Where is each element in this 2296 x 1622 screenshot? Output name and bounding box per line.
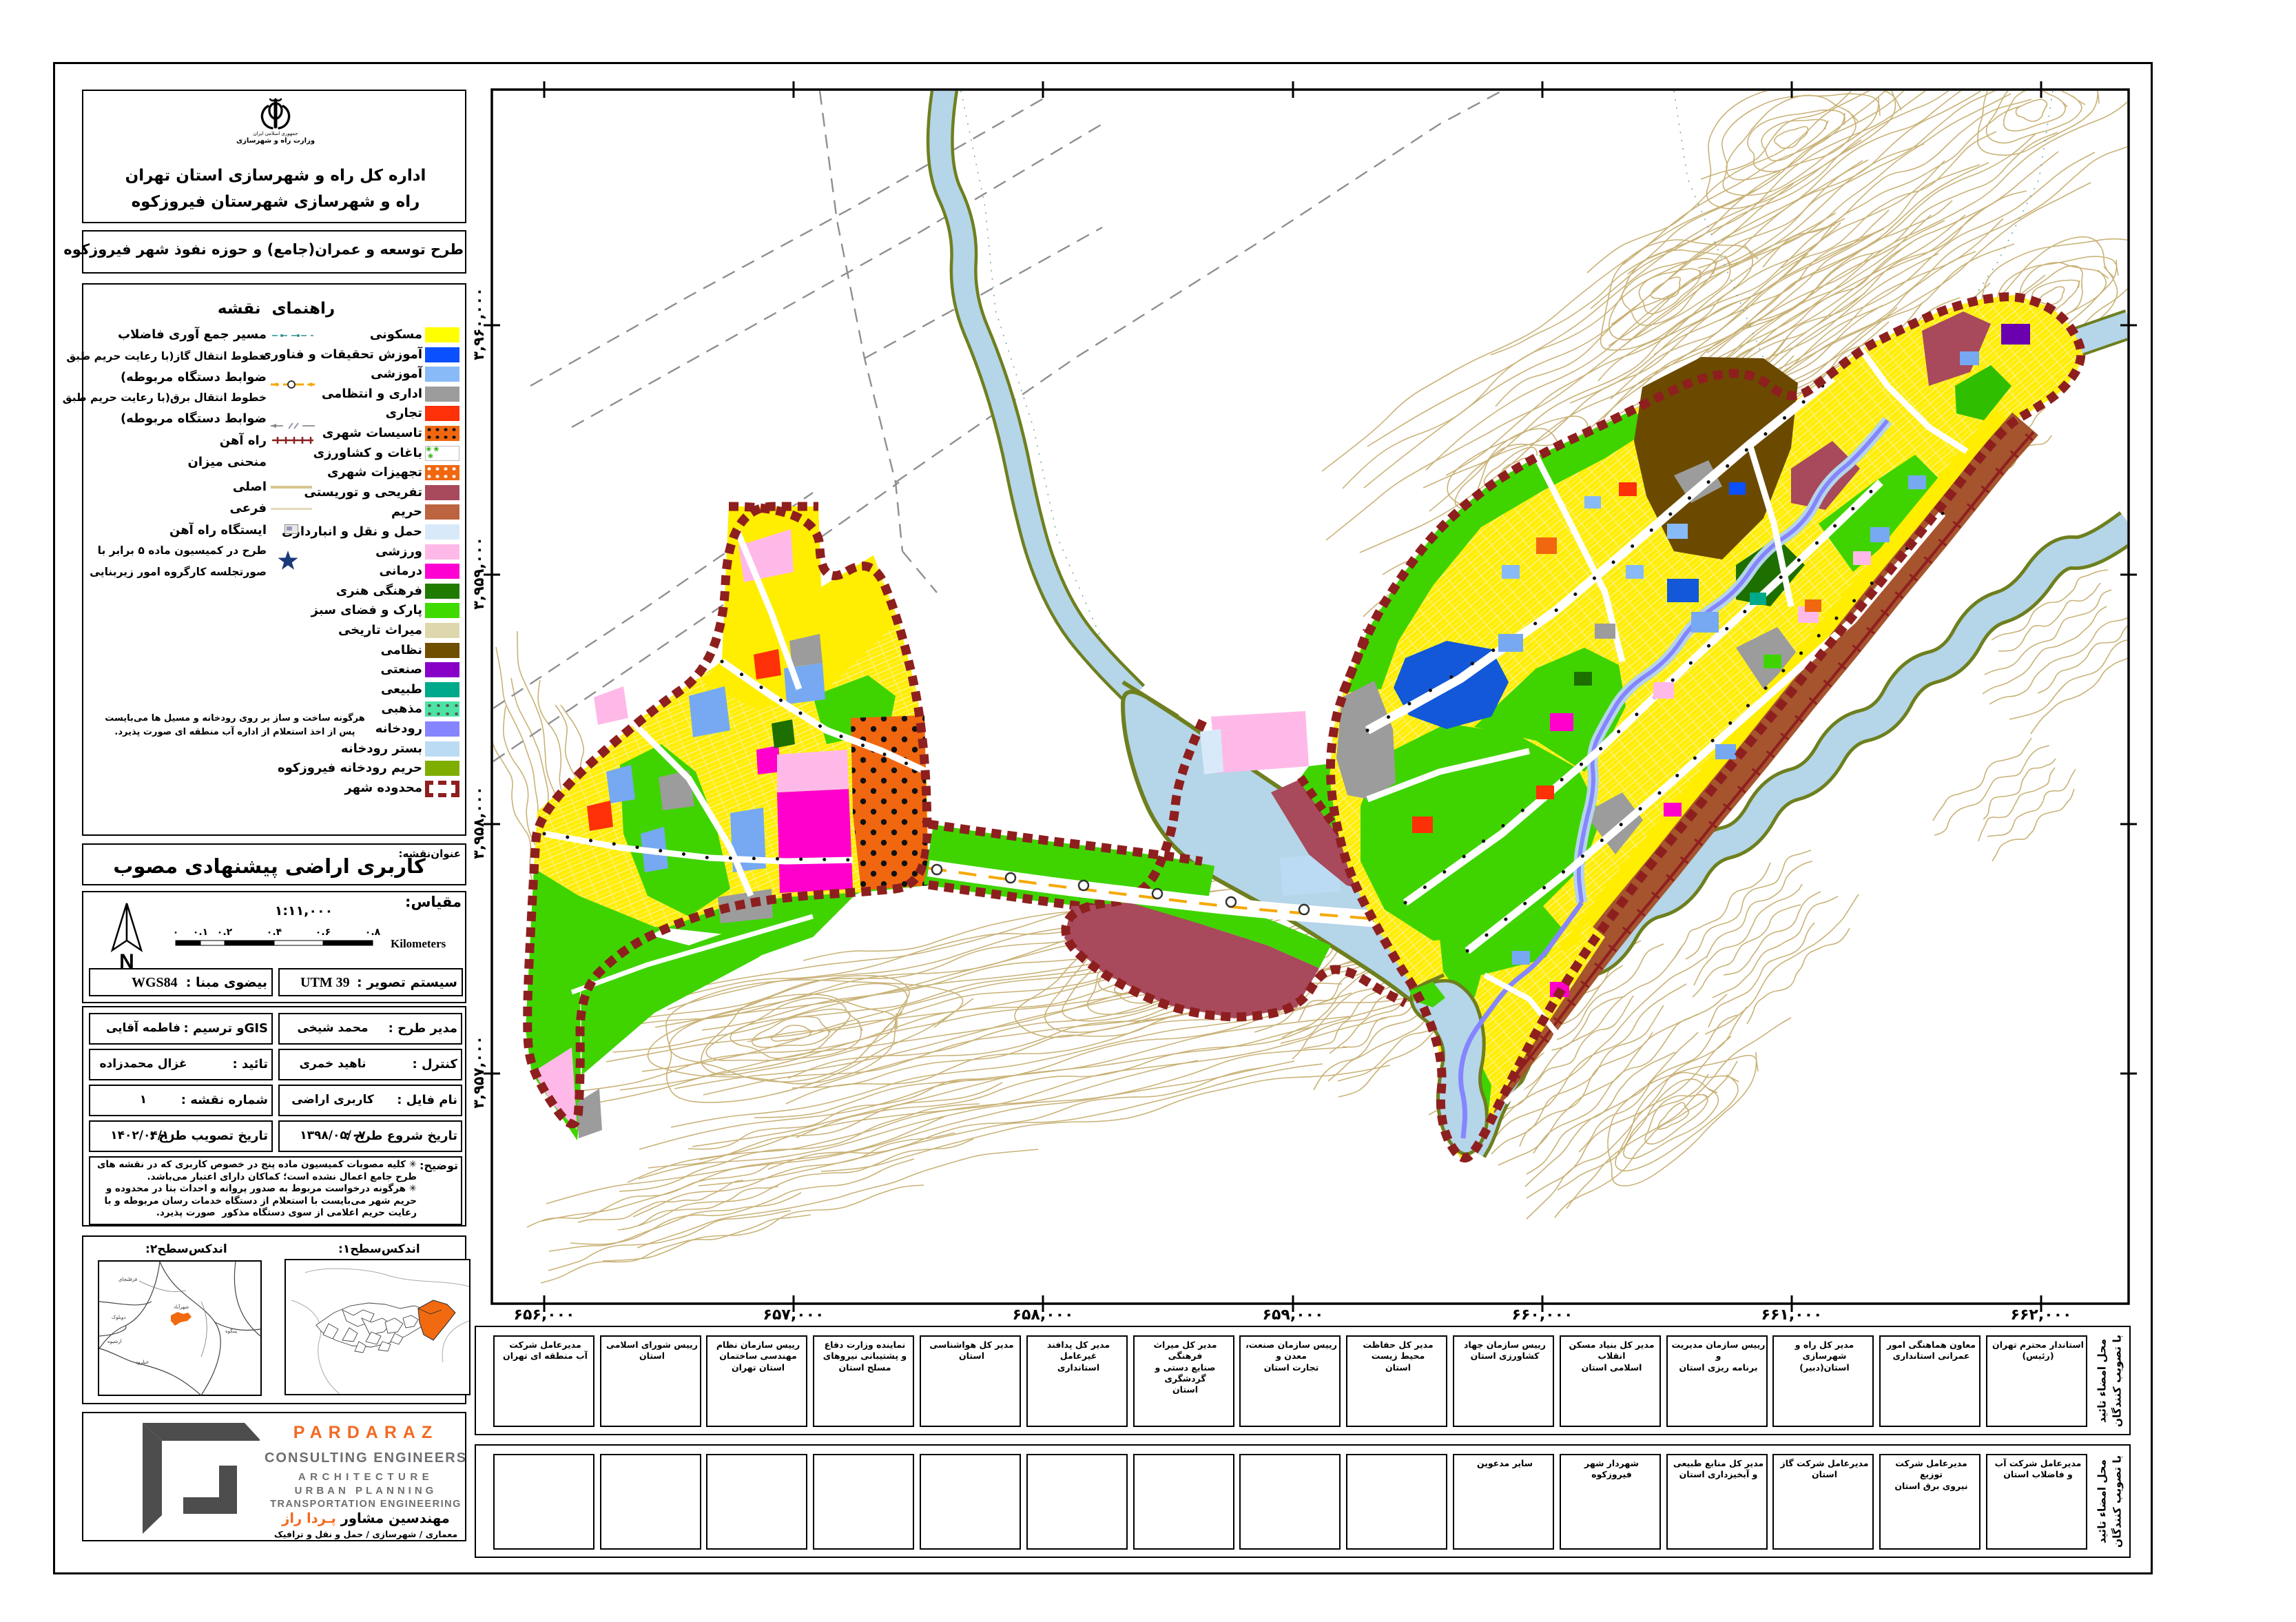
- svg-text:فزفلنجای: فزفلنجای: [118, 1277, 137, 1282]
- svg-text:۰: ۰: [173, 927, 179, 938]
- svg-text:شهرآباد: شهرآباد: [174, 1304, 189, 1310]
- svg-text:پننگوه: پننگوه: [225, 1328, 237, 1334]
- svg-text:Kilometers: Kilometers: [391, 937, 446, 950]
- svg-text:۰.۸: ۰.۸: [365, 927, 381, 938]
- svg-text:۰.۲: ۰.۲: [217, 927, 233, 938]
- svg-text:دوبلوک: دوبلوک: [112, 1315, 126, 1320]
- svg-text:جمهوری اسلامی ایران: جمهوری اسلامی ایران: [254, 131, 298, 136]
- svg-text:وزارت راه و شهرسازی: وزارت راه و شهرسازی: [236, 137, 315, 145]
- svg-text:ارشیوه: ارشیوه: [107, 1339, 122, 1344]
- svg-text:۰.۴: ۰.۴: [267, 927, 282, 938]
- svg-text:۰.۶: ۰.۶: [316, 927, 331, 938]
- svg-text:حبلرود: حبلرود: [136, 1359, 149, 1365]
- svg-text:۰.۱: ۰.۱: [193, 927, 208, 938]
